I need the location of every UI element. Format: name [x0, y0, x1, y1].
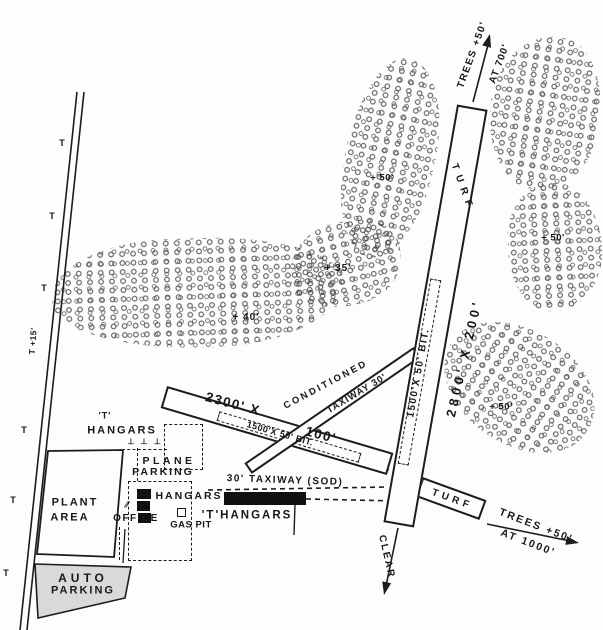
telephone-pole-marker: T: [21, 425, 27, 435]
t-hangars-leader-line: [294, 504, 295, 535]
t-hangar-symbols: ⊥ ⊥ ⊥: [127, 438, 162, 446]
telephone-pole-marker: T: [10, 495, 16, 505]
plant-area-label-2: AREA: [50, 513, 89, 524]
office-hatch-mark: ∕∕: [125, 501, 128, 510]
south-arrowhead-icon: [382, 581, 391, 595]
telephone-pole-marker: T: [3, 568, 9, 578]
telephone-pole-marker: T: [41, 283, 47, 293]
t-hangar-dashed-line: [122, 449, 167, 450]
plane-parking-label-1: PLANE: [142, 456, 195, 467]
airport-layout-map: TREES +50'AT 700'TURF2800' X 200'1500'X …: [0, 0, 603, 630]
auto-parking-label-2: PARKING: [51, 586, 115, 597]
t-hangars-nw-label-1: 'T': [99, 412, 112, 421]
plane-parking-label-2: PARKING: [132, 467, 194, 478]
pole-height-label: T +15': [28, 327, 38, 355]
auto-parking-label-1: AUTO: [58, 572, 108, 584]
telephone-pole-marker: T: [49, 211, 55, 221]
tree-height-50-mid: + 50': [370, 173, 394, 183]
tree-height-50-east: + 50': [541, 233, 565, 243]
office-driveway-dashed-line: [119, 527, 120, 560]
telephone-pole-marker: T: [59, 138, 65, 148]
t-hangars-nw-label-2: HANGARS: [87, 426, 157, 437]
tree-height-40: + 40': [232, 313, 259, 323]
t-hangars-east-label: 'T'HANGARS: [202, 510, 293, 522]
plant-area-label-1: PLANT: [52, 498, 99, 509]
tree-height-50-south: + 50': [489, 402, 513, 412]
sod-taxiway-dash-south: [306, 499, 399, 501]
hangar-building-1: [137, 489, 151, 499]
tree-height-35: + 35': [324, 264, 351, 274]
plant-driveway-line-2: [123, 529, 125, 563]
sod-taxiway-dash-north: [208, 487, 388, 490]
t-hangar-row-building: [224, 492, 306, 505]
office-label: OFFICE: [113, 514, 159, 524]
hangar-building-2: [137, 501, 150, 511]
hangars-label: HANGARS: [155, 491, 222, 502]
gas-pit-marker: [177, 508, 186, 517]
